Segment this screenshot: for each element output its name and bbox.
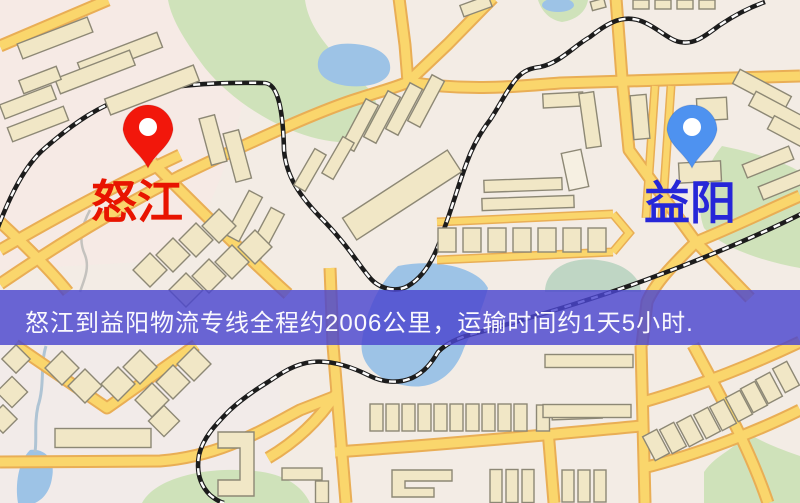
destination-label: 益阳 (644, 177, 736, 229)
route-info-text: 怒江到益阳物流专线全程约2006公里，运输时间约1天5小时. (25, 303, 694, 338)
map-canvas[interactable]: 怒江 益阳 (0, 0, 800, 503)
origin-label: 怒江 (91, 176, 183, 228)
route-info-banner: 怒江到益阳物流专线全程约2006公里，运输时间约1天5小时. (0, 290, 800, 345)
map-screenshot: 怒江 益阳 怒江到益阳物流专线全程约2006公里，运输时间约1天5小时. (0, 0, 800, 503)
